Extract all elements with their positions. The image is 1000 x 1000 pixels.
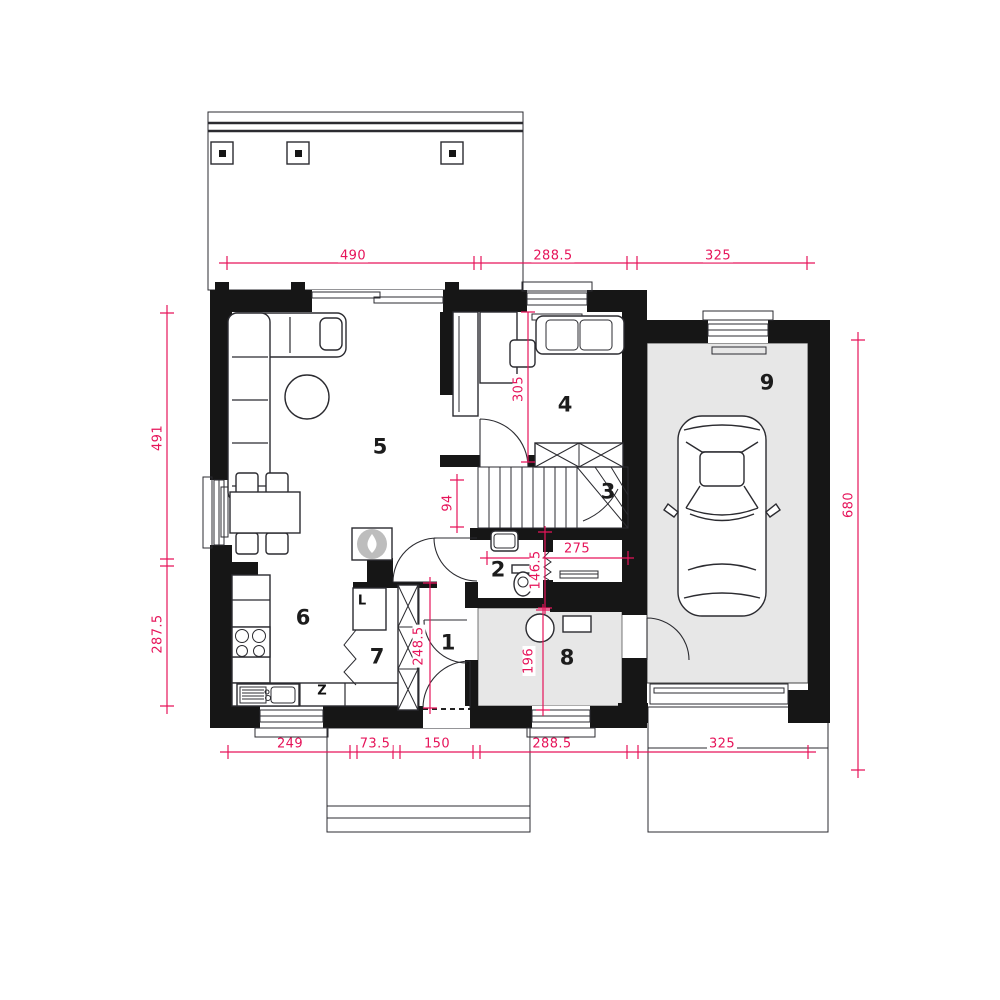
appliance-z-label: Z	[317, 685, 326, 698]
dim-wc-height: 146.5	[530, 548, 543, 591]
corridor-radiator	[560, 571, 598, 578]
dim-left-1: 491	[152, 423, 165, 453]
dining-table	[230, 492, 300, 533]
utility-window	[532, 706, 590, 728]
dim-hall-height: 248.5	[413, 624, 426, 667]
dim-utility-height: 196	[523, 646, 536, 676]
kitchen-window	[260, 706, 323, 728]
room-label-7: 7	[370, 647, 385, 668]
room-label-9: 9	[760, 373, 775, 394]
dim-bottom-4: 288.5	[530, 738, 573, 751]
floor-plan-page: 490 288.5 325 249 73.5 150 288.5 325 491…	[0, 0, 1000, 1000]
room-label-1: 1	[441, 633, 456, 654]
chair	[236, 533, 258, 554]
room-label-4: 4	[558, 395, 573, 416]
room-label-6: 6	[296, 608, 311, 629]
dim-top-1: 490	[338, 250, 368, 263]
dim-bottom-5: 325	[707, 738, 737, 751]
dim-stair-width: 94	[442, 492, 455, 513]
dim-top-2: 288.5	[531, 250, 574, 263]
dim-bottom-3: 150	[422, 738, 452, 751]
dim-bottom-1: 249	[275, 738, 305, 751]
cabinet	[453, 312, 478, 416]
living-corridor-door	[393, 538, 437, 582]
desk-chair	[510, 340, 535, 367]
fridge-label: L	[358, 595, 366, 608]
room4-door	[480, 419, 528, 467]
boiler	[526, 614, 554, 642]
dim-corridor-width: 275	[562, 543, 592, 556]
room-label-8: 8	[560, 648, 575, 669]
counter-break-symbol	[344, 630, 356, 685]
garage-door	[650, 684, 788, 704]
living-room-furniture	[228, 313, 392, 560]
dim-bottom-2: 73.5	[358, 738, 393, 751]
dim-room4-height: 305	[513, 374, 526, 404]
wc-door	[434, 538, 477, 581]
room-label-5: 5	[373, 437, 388, 458]
equipment-box	[563, 616, 591, 632]
chair	[266, 473, 288, 494]
chair	[236, 473, 258, 494]
coffee-table	[285, 375, 329, 419]
driveway	[648, 707, 828, 832]
car	[664, 416, 780, 616]
dim-right-1: 680	[843, 490, 856, 520]
room4-furniture	[453, 312, 624, 467]
garage-window	[708, 320, 768, 343]
kitchen-furniture	[232, 575, 398, 706]
room-label-2: 2	[491, 560, 506, 581]
sliding-door	[312, 290, 443, 312]
dim-left-2: 287.5	[152, 612, 165, 655]
chair	[266, 533, 288, 554]
dim-top-3: 325	[703, 250, 733, 263]
room-label-3: 3	[601, 482, 616, 503]
